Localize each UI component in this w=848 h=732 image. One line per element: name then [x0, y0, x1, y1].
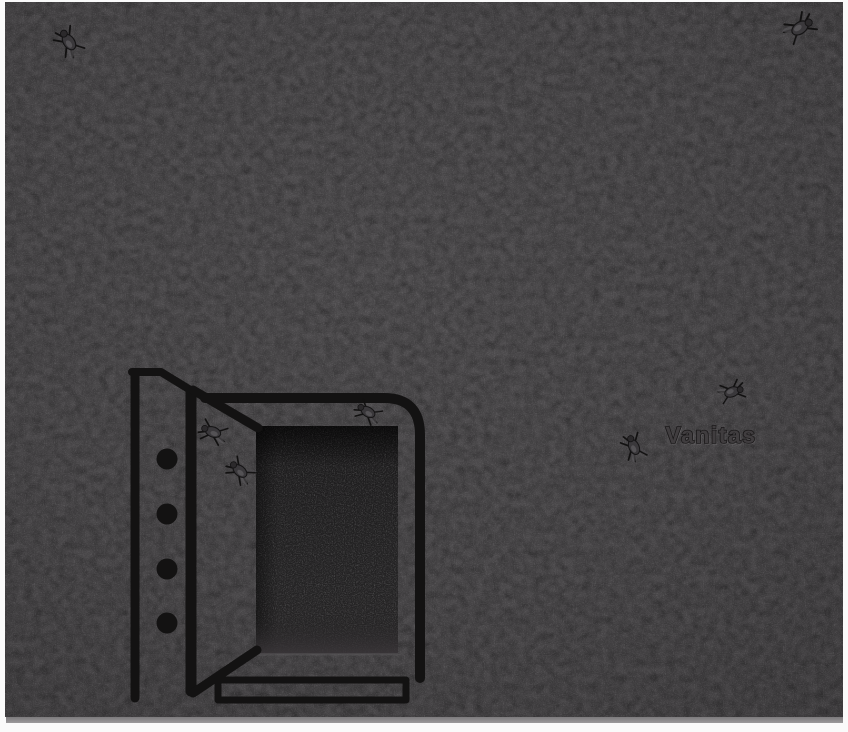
niche-lip-highlight — [256, 653, 398, 656]
inscription-text: Vanitas — [665, 422, 756, 448]
inscription: Vanitas Vanitas — [665, 422, 757, 449]
artwork-photo: Vanitas Vanitas — [0, 0, 848, 732]
niche-floor — [256, 616, 398, 654]
recessed-niche — [256, 426, 398, 656]
vanitas-relief-painting: Vanitas Vanitas — [0, 0, 848, 732]
